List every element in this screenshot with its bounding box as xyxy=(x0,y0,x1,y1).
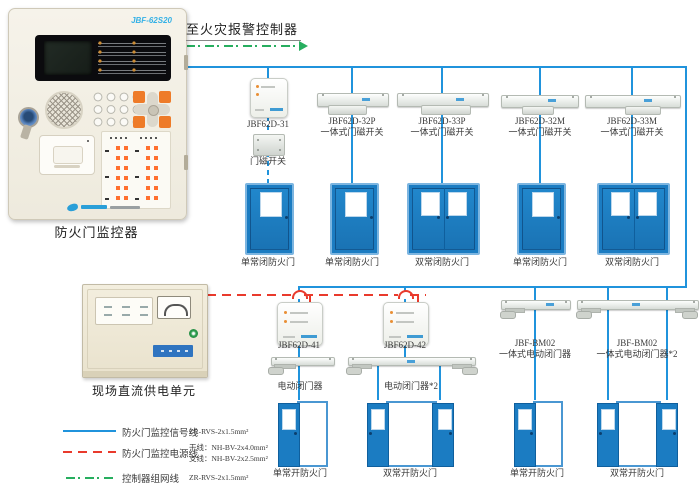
door-window xyxy=(532,192,554,217)
door-handle xyxy=(599,432,602,435)
door-window xyxy=(518,409,532,430)
door-window xyxy=(260,192,282,217)
door-open-double-right xyxy=(432,403,454,467)
indicator-ticks xyxy=(140,137,160,139)
label-door: 单常开防火门 xyxy=(250,468,350,479)
screw-dot xyxy=(693,301,695,303)
panel-brand-logo-icon xyxy=(66,203,78,212)
screw-dot xyxy=(674,96,676,98)
indicator-led-strip xyxy=(146,146,150,200)
door-handle xyxy=(446,216,449,219)
legend-label-network: 控制器组网线 xyxy=(122,471,179,485)
door-closed-single-1 xyxy=(245,183,294,255)
meter-gauge-arc xyxy=(164,304,188,316)
module-logo xyxy=(270,108,283,111)
indicator-bracket xyxy=(105,150,109,152)
label-device-name: 一体式电动闭门器*2 xyxy=(587,349,687,360)
door-handle xyxy=(673,432,676,435)
power-unit-label: 现场直流供电单元 xyxy=(82,382,206,399)
device-logo xyxy=(407,360,415,363)
door-open-double-left xyxy=(367,403,389,467)
door-handle xyxy=(627,216,630,219)
power-unit-base xyxy=(83,371,207,377)
door-window xyxy=(282,409,296,430)
door-window xyxy=(438,409,452,430)
doorway-open-3 xyxy=(533,401,563,467)
label-door: 单常闭防火门 xyxy=(302,257,402,268)
module-text-line xyxy=(283,336,295,338)
network-line xyxy=(186,45,298,47)
module-logo xyxy=(407,335,423,338)
label-device-model: JBF62D-41 xyxy=(249,340,349,351)
door-handle xyxy=(370,216,373,219)
module-text-line xyxy=(396,321,414,323)
indicator-led-strip xyxy=(124,146,128,200)
door-handle xyxy=(636,216,639,219)
module-text-line xyxy=(396,312,414,314)
door-closed-double-1 xyxy=(407,183,480,255)
screw-dot xyxy=(275,358,277,360)
door-closed-single-2 xyxy=(330,183,379,255)
screw-dot xyxy=(382,94,384,96)
panel-printer xyxy=(39,135,95,175)
door-open-single-1 xyxy=(278,403,300,467)
panel-arrow-pad xyxy=(133,91,171,128)
device-logo xyxy=(546,303,554,306)
device-door-mag-switch xyxy=(253,134,285,156)
signal-bus-row2 xyxy=(298,286,687,288)
indicator-bracket xyxy=(135,150,139,152)
closer-foot xyxy=(682,311,698,319)
panel-lcd-screen xyxy=(44,41,92,75)
indicator-bracket xyxy=(105,176,109,178)
label-device-model: JBF62D-32P xyxy=(302,116,402,127)
arrow-pad-corner xyxy=(159,116,171,128)
door-window xyxy=(421,192,440,216)
screw-dot xyxy=(470,358,472,360)
label-device-model: JBF62D-33M xyxy=(582,116,682,127)
label-door: 单常开防火门 xyxy=(487,468,587,479)
door-handle xyxy=(294,432,297,435)
module-text-line xyxy=(389,336,401,338)
panel-model-text: JBF-62S20 xyxy=(131,16,172,25)
indicator-led-strip xyxy=(154,146,158,200)
door-window xyxy=(345,192,367,217)
legend-swatch-signal-line xyxy=(63,430,116,432)
label-device-model: JBF-BM02 xyxy=(587,338,687,349)
door-closed-single-3 xyxy=(517,183,566,255)
module-led xyxy=(390,320,393,323)
module-led xyxy=(284,320,287,323)
door-window xyxy=(601,409,615,430)
closer-foot xyxy=(346,367,362,375)
device-logo xyxy=(644,99,652,102)
door-window xyxy=(371,409,385,430)
screw-dot xyxy=(581,301,583,303)
device-jbf62d-33m-magnet xyxy=(625,106,661,115)
screw-dot xyxy=(279,139,281,141)
panel-speaker xyxy=(45,91,83,129)
screw-dot xyxy=(279,149,281,151)
indicator-bracket xyxy=(135,198,139,200)
label-device-model: JBF-BM02 xyxy=(485,338,585,349)
label-door: 双常开防火门 xyxy=(360,468,460,479)
power-line-seg2 xyxy=(304,294,398,296)
screw-dot xyxy=(402,94,404,96)
module-led xyxy=(390,311,393,314)
label-device-name: 一体式门磁开关 xyxy=(392,127,492,138)
screw-dot xyxy=(505,301,507,303)
module-logo xyxy=(301,335,317,338)
door-center-divider xyxy=(444,188,445,250)
device-jbf62d-31 xyxy=(250,78,288,118)
to-fire-alarm-note: 至火灾报警控制器 xyxy=(186,19,301,41)
label-door: 双常闭防火门 xyxy=(582,257,682,268)
panel-keys-hanging xyxy=(20,124,32,140)
door-handle xyxy=(449,432,452,435)
arrow-pad-corner xyxy=(133,91,145,103)
closer-foot xyxy=(500,311,516,319)
legend-swatch-network-line xyxy=(66,477,116,479)
screw-dot xyxy=(257,149,259,151)
door-center-divider xyxy=(634,188,635,250)
legend-spec-power-trunk: 干线：NH-BV-2x4.0mm² xyxy=(189,442,268,453)
power-model-sticker xyxy=(153,345,193,357)
label-device-name: 一体式门磁开关 xyxy=(582,127,682,138)
printer-slot xyxy=(53,146,83,164)
door-open-double2-left xyxy=(597,403,619,467)
module-led xyxy=(256,85,259,88)
fire-door-monitor-panel: JBF-62S20 xyxy=(8,8,187,220)
legend-spec-power-branch: 支线：NH-BV-2x2.5mm² xyxy=(189,453,268,464)
module-led xyxy=(256,93,259,96)
label-mag-switch: 门磁开关 xyxy=(218,156,318,167)
legend-spec-network: ZR-RVS-2x1.5mm² xyxy=(189,473,248,482)
door-window xyxy=(662,409,676,430)
power-meter xyxy=(157,296,191,319)
arrow-pad-ok-button xyxy=(148,105,159,116)
door-handle xyxy=(437,216,440,219)
label-door: 单常闭防火门 xyxy=(490,257,590,268)
screw-dot xyxy=(257,139,259,141)
panel-label: 防火门监控器 xyxy=(8,222,185,241)
screw-dot xyxy=(482,94,484,96)
label-device-name: 一体式门磁开关 xyxy=(490,127,590,138)
door-open-double2-right xyxy=(656,403,678,467)
closer-foot xyxy=(268,367,284,375)
indicator-ticks xyxy=(110,137,130,139)
dc-power-unit xyxy=(82,284,208,378)
power-line-seg1 xyxy=(207,294,292,296)
door-handle xyxy=(285,216,288,219)
label-device-name: 电动闭门器 xyxy=(250,381,350,392)
printer-paper-slot xyxy=(54,165,80,168)
power-indicator-cluster xyxy=(95,297,153,325)
panel-brand-logo-text xyxy=(81,205,107,209)
fire-door-monitoring-system-diagram: JBF-62S20 xyxy=(0,0,700,495)
label-door: 双常闭防火门 xyxy=(392,257,492,268)
screw-dot xyxy=(506,96,508,98)
indicator-bracket xyxy=(135,176,139,178)
indicator-bracket xyxy=(105,198,109,200)
closer-foot xyxy=(576,311,592,319)
door-window xyxy=(611,192,630,216)
device-logo xyxy=(632,303,640,306)
label-device-model: JBF62D-32M xyxy=(490,116,590,127)
module-text-line xyxy=(290,321,308,323)
arrow-pad-corner xyxy=(159,91,171,103)
label-door: 双常开防火门 xyxy=(587,468,687,479)
module-text-line xyxy=(261,86,275,88)
doorway-open-2 xyxy=(386,401,437,467)
label-device-model: JBF62D-42 xyxy=(355,340,455,351)
closer-foot xyxy=(462,367,478,375)
door-handle xyxy=(369,432,372,435)
module-text-line xyxy=(290,312,308,314)
panel-led-status-grid xyxy=(98,40,166,77)
screw-dot xyxy=(572,96,574,98)
door-closed-double-2 xyxy=(597,183,670,255)
module-text-line xyxy=(255,109,264,111)
panel-led-indicator-board xyxy=(101,131,171,209)
device-jbf62d-32p-magnet xyxy=(328,105,367,115)
printer-indicator-dot xyxy=(87,140,89,142)
device-logo xyxy=(362,98,370,101)
panel-hinge-top xyxy=(184,55,188,70)
label-device-model: JBF62D-33P xyxy=(392,116,492,127)
device-logo xyxy=(456,98,464,101)
power-brand-sticker xyxy=(189,329,198,338)
device-jbf62d-32m-magnet xyxy=(522,106,554,115)
door-window xyxy=(448,192,467,216)
module-led xyxy=(284,311,287,314)
signal-bus-right-drop xyxy=(685,66,687,288)
screw-dot xyxy=(565,301,567,303)
doorway-open-4 xyxy=(616,401,661,467)
door-handle xyxy=(557,216,560,219)
signal-bus-row1 xyxy=(185,66,687,68)
legend-swatch-power-line xyxy=(63,451,116,453)
panel-hinge-bottom xyxy=(184,155,188,170)
indicator-led-strip xyxy=(116,146,120,200)
panel-display xyxy=(35,35,171,81)
screw-dot xyxy=(329,358,331,360)
screw-dot xyxy=(322,94,324,96)
door-window xyxy=(638,192,657,216)
label-device-name: 一体式门磁开关 xyxy=(302,127,402,138)
device-jbf62d-33p-magnet xyxy=(421,105,471,115)
screw-dot xyxy=(352,358,354,360)
panel-brand-subtext xyxy=(110,206,140,209)
doorway-open-1 xyxy=(297,401,328,467)
label-device-name: 一体式电动闭门器 xyxy=(485,349,585,360)
arrow-pad-corner xyxy=(133,116,145,128)
device-logo xyxy=(548,99,556,102)
legend-spec-signal: ZR-RVS-2x1.5mm² xyxy=(189,427,248,436)
legend-label-signal: 防火门监控信号线 xyxy=(122,425,198,439)
network-line-arrowhead-icon xyxy=(299,41,308,51)
screw-dot xyxy=(590,96,592,98)
legend-label-power: 防火门监控电源线 xyxy=(122,446,198,460)
label-device-name: 电动闭门器*2 xyxy=(361,381,461,392)
door-open-single-2 xyxy=(514,403,536,467)
door-handle xyxy=(530,432,533,435)
